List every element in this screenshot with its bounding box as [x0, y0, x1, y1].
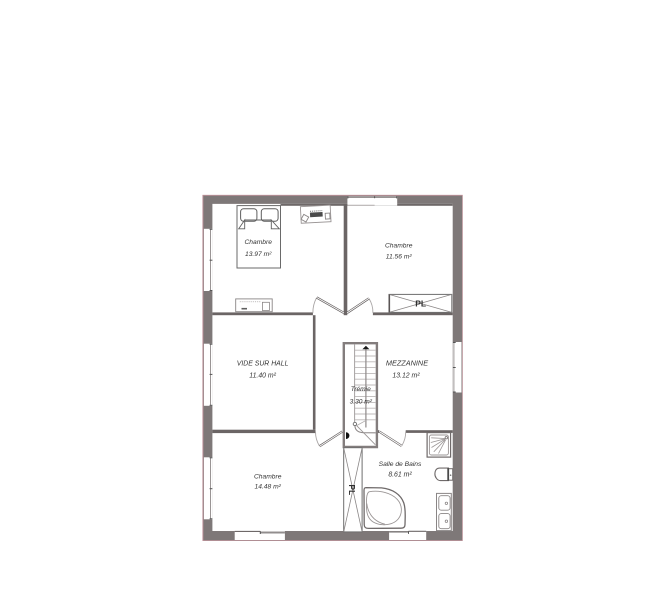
- svg-text:MEZZANINE: MEZZANINE: [386, 358, 428, 367]
- svg-text:Chambre: Chambre: [244, 239, 272, 246]
- svg-text:3.30 m²: 3.30 m²: [350, 398, 373, 405]
- svg-text:8.61 m²: 8.61 m²: [388, 471, 412, 478]
- svg-text:11.56 m²: 11.56 m²: [386, 253, 413, 260]
- svg-text:PL: PL: [347, 484, 357, 495]
- svg-text:13.12 m²: 13.12 m²: [392, 373, 420, 380]
- svg-text:11.40 m²: 11.40 m²: [249, 373, 276, 380]
- svg-text:Chambre: Chambre: [385, 242, 413, 249]
- svg-text:Salle de Bains: Salle de Bains: [379, 461, 422, 468]
- svg-text:13.97 m²: 13.97 m²: [245, 251, 272, 258]
- svg-text:VIDE SUR HALL: VIDE SUR HALL: [237, 360, 289, 367]
- svg-text:Chambre: Chambre: [254, 473, 282, 480]
- svg-text:PL: PL: [415, 299, 426, 309]
- svg-text:Trémie: Trémie: [351, 386, 371, 393]
- svg-text:14.48 m²: 14.48 m²: [254, 484, 281, 491]
